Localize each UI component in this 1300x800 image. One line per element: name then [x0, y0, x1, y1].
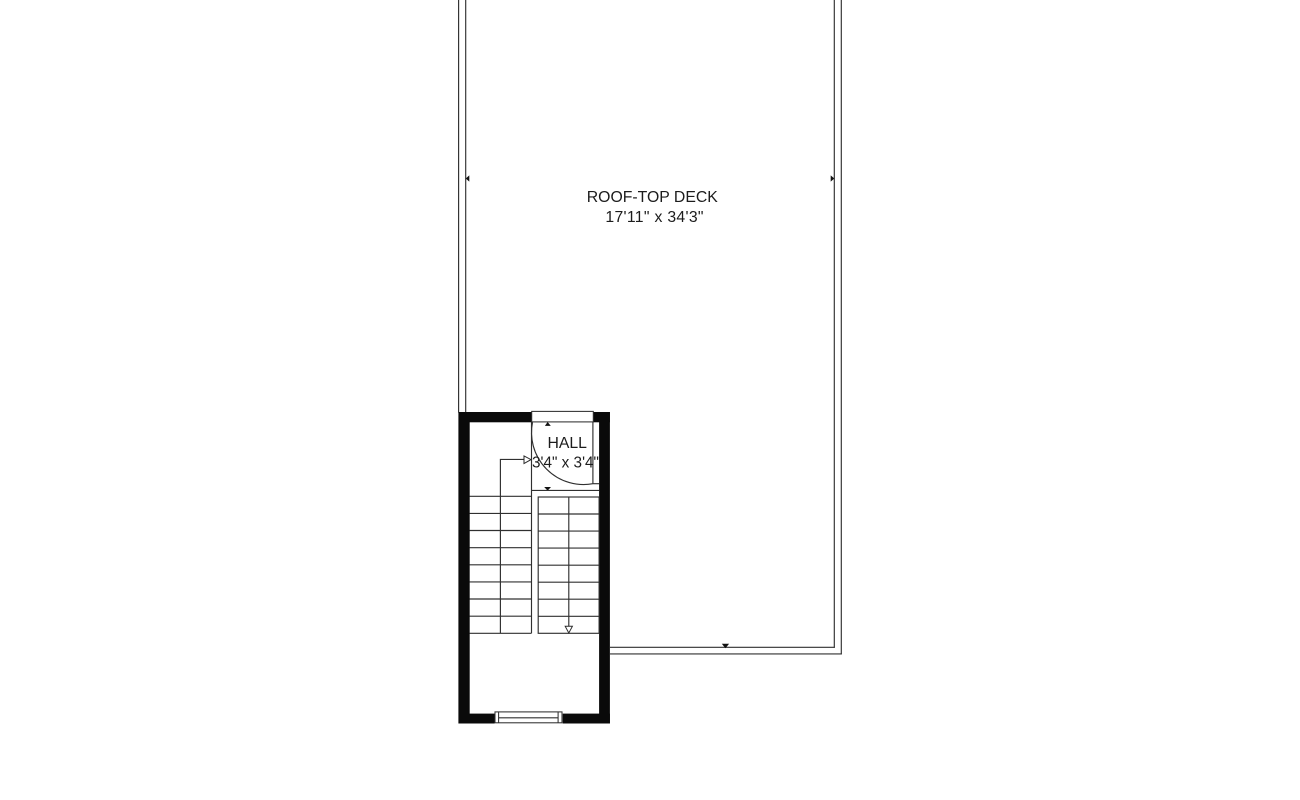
svg-text:17'11" x 34'3": 17'11" x 34'3" [605, 209, 703, 226]
svg-text:ROOF-TOP DECK: ROOF-TOP DECK [587, 189, 719, 206]
svg-text:HALL: HALL [547, 435, 587, 452]
svg-text:3'4" x 3'4": 3'4" x 3'4" [532, 455, 599, 472]
